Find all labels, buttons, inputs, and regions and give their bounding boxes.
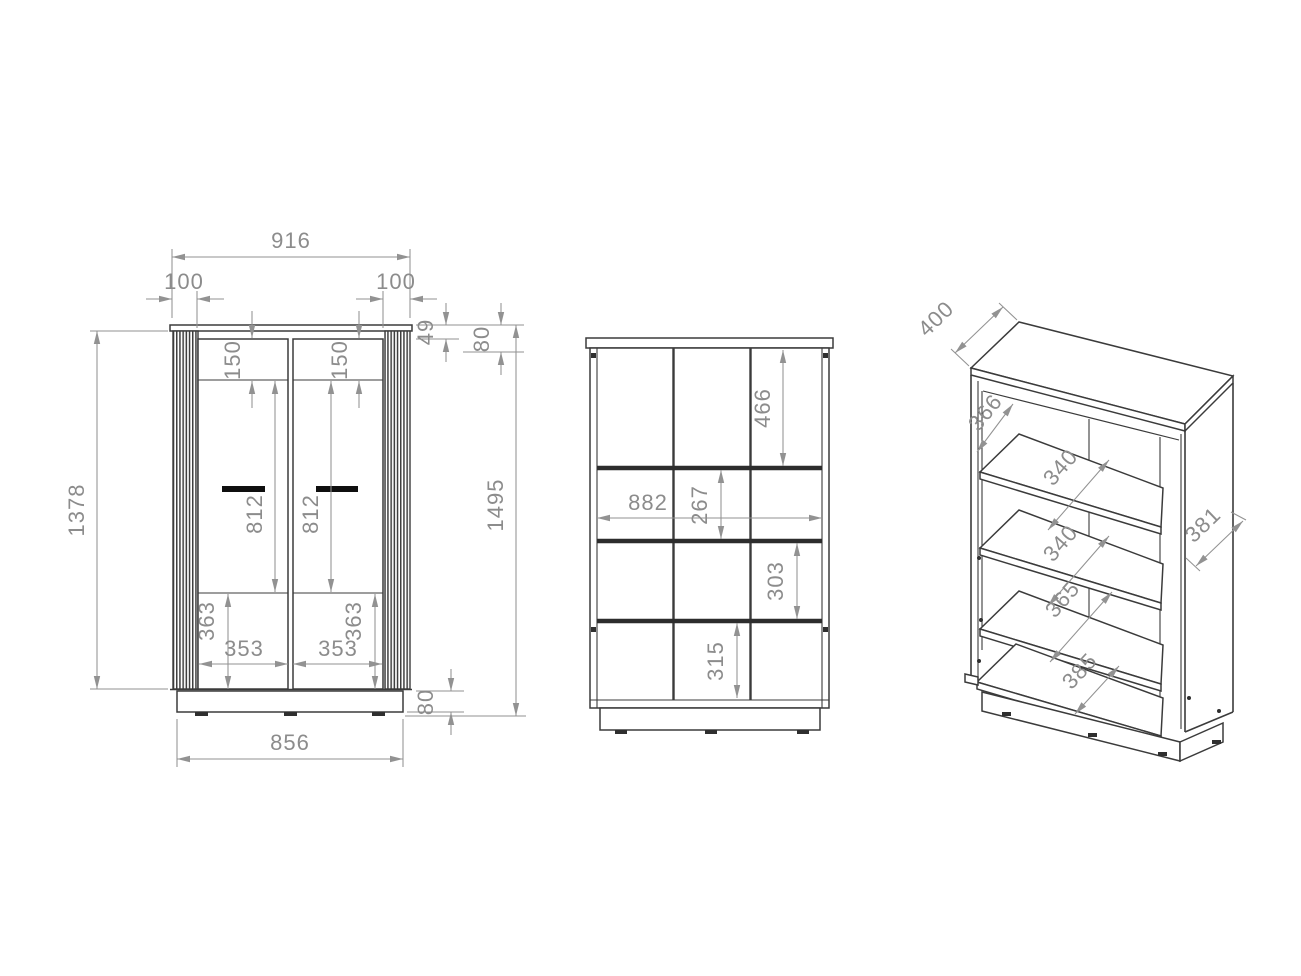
dim-side-panel-right: 100 bbox=[376, 269, 416, 294]
dim-compartment-3: 303 bbox=[763, 561, 788, 601]
dim-plinth-height: 80 bbox=[413, 689, 438, 715]
dim-overall-width: 916 bbox=[271, 228, 311, 253]
technical-drawing-page: 916 100 100 49 80 1378 1495 150 bbox=[0, 0, 1301, 976]
iso-pin-4 bbox=[1187, 696, 1191, 700]
dim-bottom-section-right: 363 bbox=[341, 601, 366, 641]
iso-pin-2 bbox=[979, 618, 983, 622]
iso-foot-4 bbox=[1212, 740, 1221, 744]
iso-pin-5 bbox=[1217, 709, 1221, 713]
open-foot-right bbox=[797, 730, 809, 734]
front-foot-right bbox=[372, 712, 385, 716]
iso-pin-3 bbox=[977, 659, 981, 663]
dim-total-height: 1495 bbox=[483, 479, 508, 532]
hinge-mark-top-right bbox=[823, 353, 828, 358]
dim-bottom-section-left: 363 bbox=[194, 601, 219, 641]
open-foot-left bbox=[615, 730, 627, 734]
open-front-view: 466 882 267 303 315 bbox=[586, 338, 833, 734]
front-plinth bbox=[177, 691, 403, 712]
dim-top-board: 49 bbox=[413, 319, 438, 345]
dim-compartment-4: 315 bbox=[703, 641, 728, 681]
front-right-slat-panel bbox=[385, 331, 410, 689]
iso-foot-3 bbox=[1158, 752, 1167, 756]
dim-base-width: 856 bbox=[270, 730, 310, 755]
hinge-mark-top-left bbox=[591, 353, 596, 358]
iso-pin-1 bbox=[977, 556, 981, 560]
dim-side-depth: 381 bbox=[1180, 502, 1226, 548]
iso-foot-2 bbox=[1088, 733, 1097, 737]
dim-top-section: 80 bbox=[469, 326, 494, 352]
open-plinth bbox=[600, 708, 820, 730]
front-view: 916 100 100 49 80 1378 1495 150 bbox=[64, 228, 526, 767]
hinge-mark-bottom-left bbox=[591, 627, 596, 632]
dim-top-depth: 400 bbox=[913, 296, 959, 342]
iso-shelf-1 bbox=[980, 434, 1163, 534]
iso-foot-1 bbox=[1002, 712, 1011, 716]
dim-compartment-2: 267 bbox=[687, 485, 712, 525]
dim-interior-width: 882 bbox=[628, 490, 668, 515]
front-top-board bbox=[170, 325, 412, 331]
hinge-mark-bottom-right bbox=[823, 627, 828, 632]
open-top-board bbox=[586, 338, 833, 348]
dim-door-width-right: 353 bbox=[318, 636, 358, 661]
isometric-view: 400 366 340 340 365 385 381 bbox=[913, 296, 1246, 761]
front-foot-center bbox=[284, 712, 297, 716]
front-foot-left bbox=[195, 712, 208, 716]
dim-top-compartment: 466 bbox=[750, 388, 775, 428]
right-door-handle bbox=[316, 486, 358, 492]
open-foot-center bbox=[705, 730, 717, 734]
iso-top-board bbox=[971, 322, 1233, 431]
dim-door-height-left: 812 bbox=[242, 494, 267, 534]
dim-side-panel-left: 100 bbox=[164, 269, 204, 294]
dim-door-width-left: 353 bbox=[224, 636, 264, 661]
cabinet-dimension-drawing: 916 100 100 49 80 1378 1495 150 bbox=[0, 0, 1301, 976]
dim-door-top-left: 150 bbox=[220, 340, 245, 380]
left-door-handle bbox=[222, 486, 265, 492]
dim-body-height: 1378 bbox=[64, 484, 89, 537]
dim-door-top-right: 150 bbox=[327, 340, 352, 380]
dim-door-height-right: 812 bbox=[298, 494, 323, 534]
